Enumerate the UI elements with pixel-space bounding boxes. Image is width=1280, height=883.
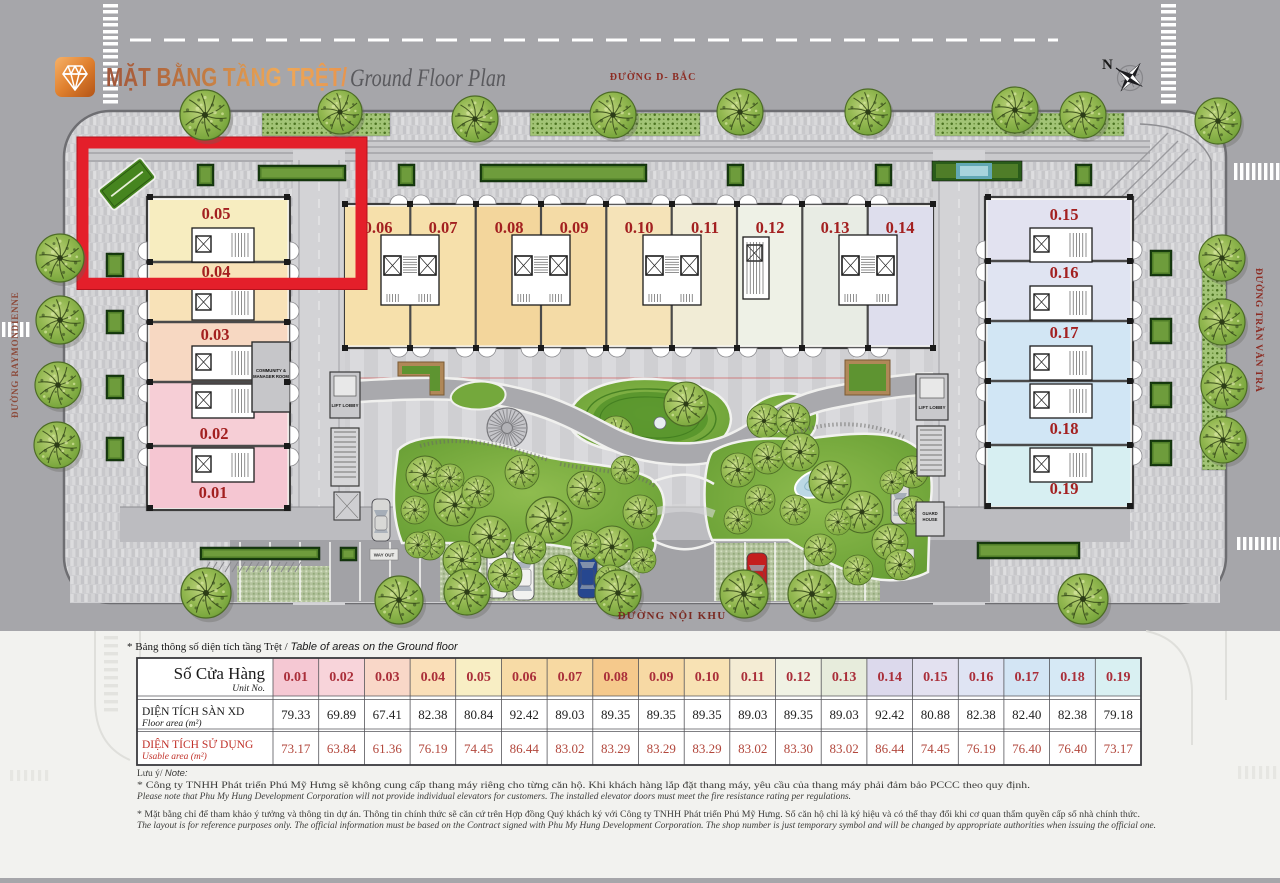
svg-text:LIFT LOBBY: LIFT LOBBY [918,405,945,410]
svg-text:0.15: 0.15 [923,670,948,685]
svg-text:67.41: 67.41 [373,707,402,722]
svg-text:86.44: 86.44 [510,741,540,756]
svg-text:ĐƯỜNG RAYMONDIENNE: ĐƯỜNG RAYMONDIENNE [10,292,20,419]
svg-text:0.13: 0.13 [832,670,857,685]
svg-text:0.12: 0.12 [786,670,811,685]
svg-text:76.19: 76.19 [966,741,995,756]
svg-text:The layout is for reference pu: The layout is for reference purposes onl… [137,820,1156,831]
svg-text:82.38: 82.38 [418,707,447,722]
svg-text:0.05: 0.05 [202,204,231,223]
svg-text:73.17: 73.17 [1104,741,1134,756]
svg-text:79.18: 79.18 [1104,707,1133,722]
svg-text:83.29: 83.29 [692,741,721,756]
svg-text:0.08: 0.08 [603,670,628,685]
svg-text:73.17: 73.17 [281,741,311,756]
svg-text:83.02: 83.02 [829,741,858,756]
svg-text:DIỆN TÍCH SỬ DỤNG: DIỆN TÍCH SỬ DỤNG [142,737,253,751]
svg-text:0.02: 0.02 [329,670,354,685]
svg-text:0.10: 0.10 [695,670,720,685]
svg-text:* Bảng thông số diện tích tầng: * Bảng thông số diện tích tầng Trệt / Ta… [127,641,459,653]
svg-text:0.10: 0.10 [625,218,654,237]
svg-text:80.88: 80.88 [921,707,950,722]
svg-text:Số Cửa Hàng: Số Cửa Hàng [174,664,266,683]
svg-text:61.36: 61.36 [373,741,403,756]
svg-text:Please note that Phu My Hung D: Please note that Phu My Hung Development… [136,791,851,802]
svg-text:0.03: 0.03 [201,325,230,344]
svg-text:ĐƯỜNG D- BẮC: ĐƯỜNG D- BẮC [610,70,697,83]
svg-text:HOUSE: HOUSE [923,517,938,522]
svg-text:MẶT BẰNG TẦNG TRỆT/: MẶT BẰNG TẦNG TRỆT/ [106,62,347,92]
svg-text:83.02: 83.02 [555,741,584,756]
svg-text:89.35: 89.35 [692,707,721,722]
svg-text:0.19: 0.19 [1050,479,1079,498]
svg-text:82.38: 82.38 [966,707,995,722]
svg-text:N: N [1102,57,1113,73]
svg-text:Unit No.: Unit No. [232,684,265,694]
svg-text:ĐƯỜNG NỘI KHU: ĐƯỜNG NỘI KHU [618,609,727,622]
svg-text:0.07: 0.07 [558,670,583,685]
svg-text:GUARD: GUARD [922,511,937,516]
svg-text:76.40: 76.40 [1012,741,1041,756]
svg-text:0.01: 0.01 [199,483,228,502]
svg-text:* Công ty TNHH Phát triển Phú: * Công ty TNHH Phát triển Phú Mỹ Hưng sẽ… [137,780,1030,791]
svg-text:0.14: 0.14 [886,218,915,237]
svg-text:Floor area (m²): Floor area (m²) [141,718,202,729]
svg-text:83.30: 83.30 [784,741,813,756]
svg-text:0.06: 0.06 [512,670,537,685]
svg-text:76.19: 76.19 [418,741,447,756]
svg-text:82.40: 82.40 [1012,707,1041,722]
svg-text:83.29: 83.29 [601,741,630,756]
svg-text:0.12: 0.12 [756,218,785,237]
svg-text:0.01: 0.01 [284,670,309,685]
svg-text:92.42: 92.42 [875,707,904,722]
svg-text:0.05: 0.05 [466,670,491,685]
svg-text:82.38: 82.38 [1058,707,1087,722]
svg-text:89.03: 89.03 [555,707,584,722]
svg-text:79.33: 79.33 [281,707,310,722]
svg-text:0.09: 0.09 [649,670,674,685]
svg-text:0.17: 0.17 [1015,670,1040,685]
svg-text:0.04: 0.04 [421,670,446,685]
svg-text:0.15: 0.15 [1050,205,1079,224]
svg-text:0.18: 0.18 [1050,419,1079,438]
svg-text:* Mặt bằng chỉ để tham khảo ý: * Mặt bằng chỉ để tham khảo ý tưởng và t… [137,809,1140,820]
svg-text:89.35: 89.35 [647,707,676,722]
svg-text:WAY OUT: WAY OUT [374,553,395,558]
svg-text:83.02: 83.02 [738,741,767,756]
svg-text:89.35: 89.35 [601,707,630,722]
svg-text:Usable area (m²): Usable area (m²) [142,751,207,762]
svg-text:0.19: 0.19 [1106,670,1131,685]
svg-text:0.11: 0.11 [691,218,719,237]
svg-text:DIỆN TÍCH SÀN XD: DIỆN TÍCH SÀN XD [142,704,244,718]
svg-text:0.13: 0.13 [821,218,850,237]
svg-text:0.16: 0.16 [969,670,994,685]
svg-text:86.44: 86.44 [875,741,905,756]
svg-text:0.03: 0.03 [375,670,400,685]
svg-text:COMMUNITY &: COMMUNITY & [256,368,286,373]
svg-text:76.40: 76.40 [1058,741,1087,756]
svg-text:0.16: 0.16 [1050,263,1079,282]
svg-text:74.45: 74.45 [464,741,493,756]
svg-text:MANAGER ROOM: MANAGER ROOM [253,374,289,379]
svg-text:0.08: 0.08 [495,218,524,237]
svg-text:0.09: 0.09 [560,218,589,237]
svg-text:0.07: 0.07 [429,218,458,237]
svg-text:0.17: 0.17 [1050,323,1079,342]
svg-text:0.14: 0.14 [877,670,902,685]
svg-text:LIFT LOBBY: LIFT LOBBY [331,403,358,408]
svg-text:89.35: 89.35 [784,707,813,722]
svg-text:Ground Floor Plan: Ground Floor Plan [350,65,506,92]
svg-text:92.42: 92.42 [510,707,539,722]
svg-text:63.84: 63.84 [327,741,357,756]
svg-text:89.03: 89.03 [829,707,858,722]
svg-text:69.89: 69.89 [327,707,356,722]
svg-text:0.02: 0.02 [200,424,229,443]
svg-text:0.11: 0.11 [741,670,765,685]
svg-text:0.18: 0.18 [1060,670,1085,685]
svg-text:74.45: 74.45 [921,741,950,756]
svg-text:Lưu ý/ Note:: Lưu ý/ Note: [137,768,188,779]
svg-text:89.03: 89.03 [738,707,767,722]
svg-text:83.29: 83.29 [647,741,676,756]
svg-text:0.06: 0.06 [364,218,393,237]
svg-text:80.84: 80.84 [464,707,494,722]
